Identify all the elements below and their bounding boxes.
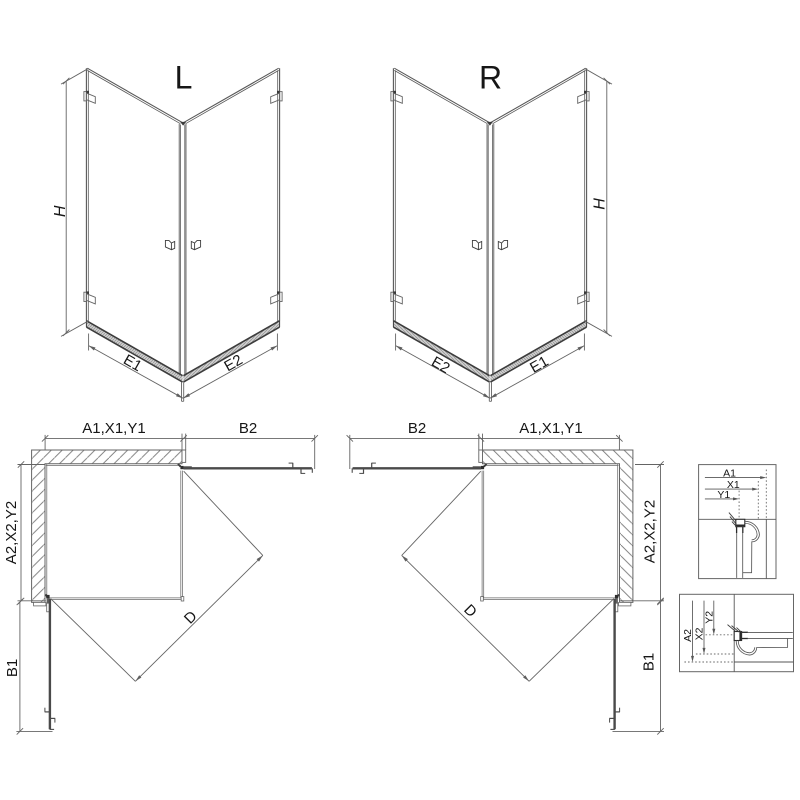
svg-text:H: H bbox=[52, 205, 69, 217]
svg-text:A2,X2,Y2: A2,X2,Y2 bbox=[642, 500, 659, 563]
svg-text:A1,X1,Y1: A1,X1,Y1 bbox=[519, 420, 582, 437]
svg-text:A2: A2 bbox=[682, 629, 694, 642]
svg-text:X2: X2 bbox=[694, 627, 706, 640]
svg-text:B1: B1 bbox=[641, 653, 658, 671]
svg-text:A1,X1,Y1: A1,X1,Y1 bbox=[82, 420, 145, 437]
svg-text:B2: B2 bbox=[408, 420, 426, 437]
svg-text:Y1: Y1 bbox=[717, 489, 730, 501]
svg-text:L: L bbox=[175, 60, 193, 96]
svg-text:R: R bbox=[479, 60, 502, 96]
svg-text:Y2: Y2 bbox=[704, 611, 716, 624]
svg-text:A2,X2,Y2: A2,X2,Y2 bbox=[3, 501, 20, 564]
svg-text:B1: B1 bbox=[4, 659, 21, 677]
svg-text:H: H bbox=[592, 198, 609, 210]
svg-text:A1: A1 bbox=[723, 467, 736, 479]
svg-text:B2: B2 bbox=[239, 420, 257, 437]
